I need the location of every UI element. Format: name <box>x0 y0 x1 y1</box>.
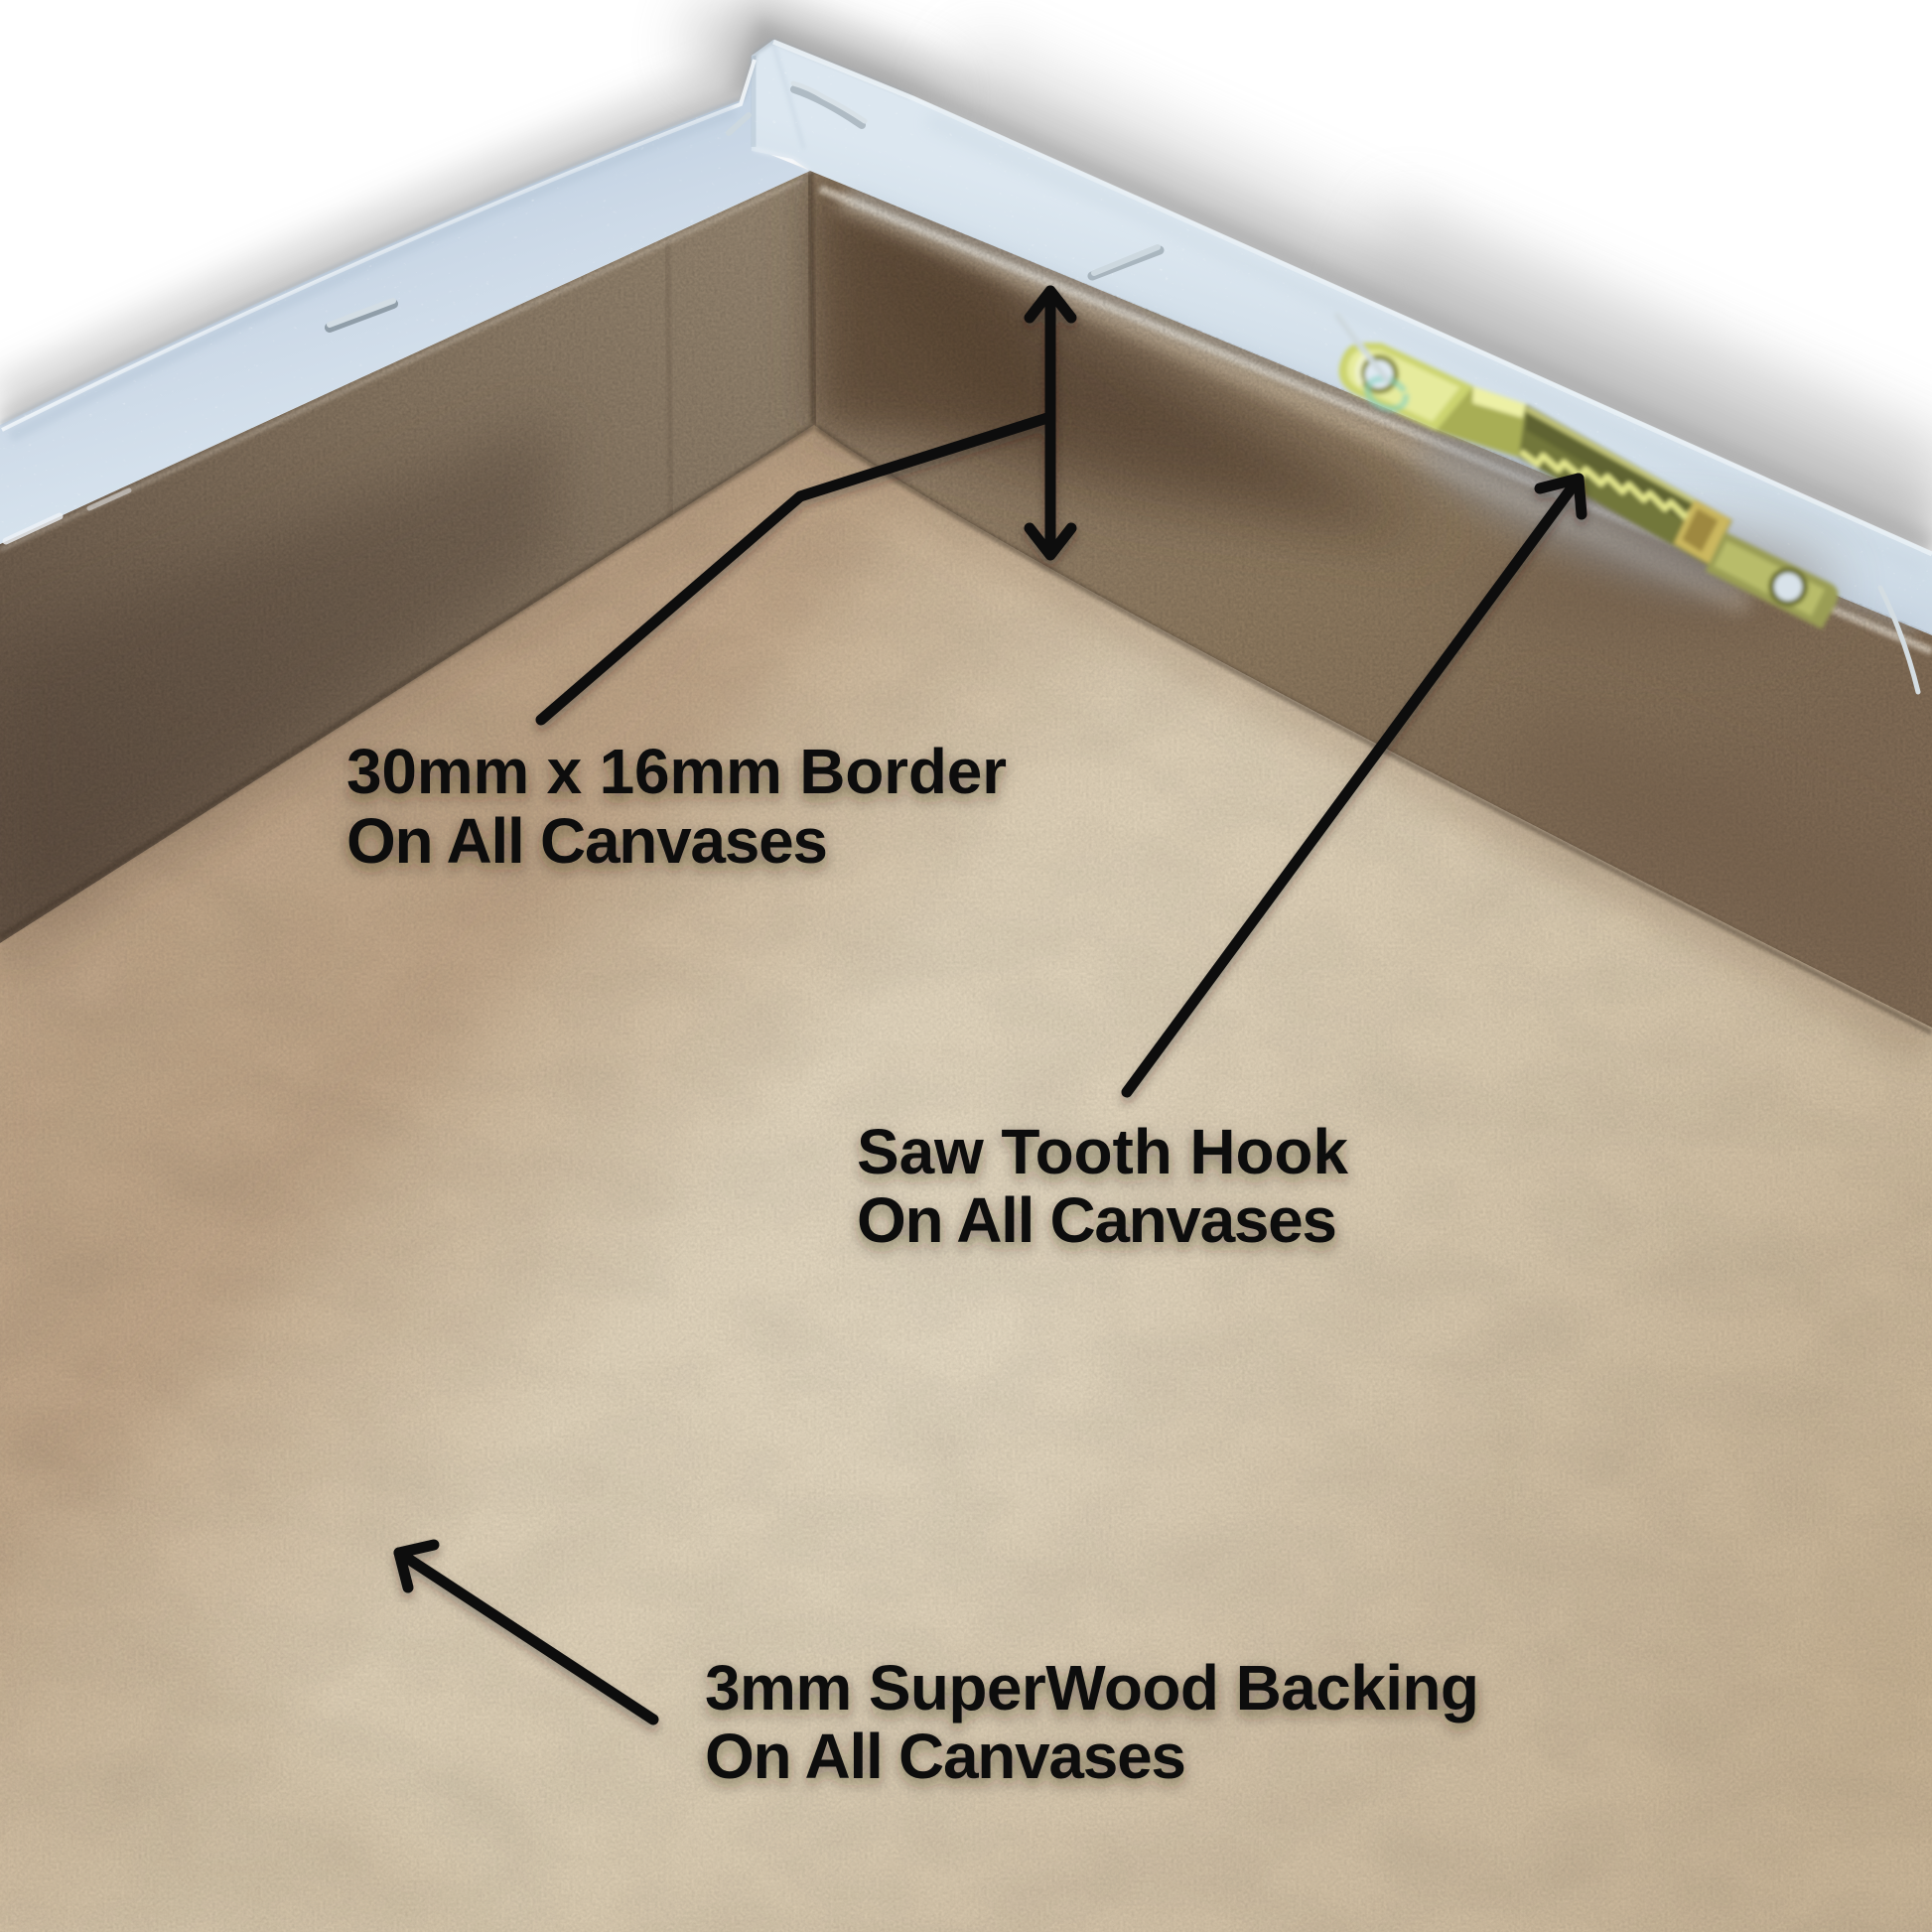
svg-text:On All Canvases: On All Canvases <box>346 805 828 877</box>
svg-text:Saw Tooth Hook: Saw Tooth Hook <box>857 1116 1348 1187</box>
svg-text:3mm SuperWood Backing: 3mm SuperWood Backing <box>705 1652 1479 1724</box>
svg-text:On All Canvases: On All Canvases <box>857 1184 1337 1256</box>
svg-text:On All Canvases: On All Canvases <box>705 1721 1186 1792</box>
svg-text:30mm x 16mm Border: 30mm x 16mm Border <box>346 736 1007 807</box>
